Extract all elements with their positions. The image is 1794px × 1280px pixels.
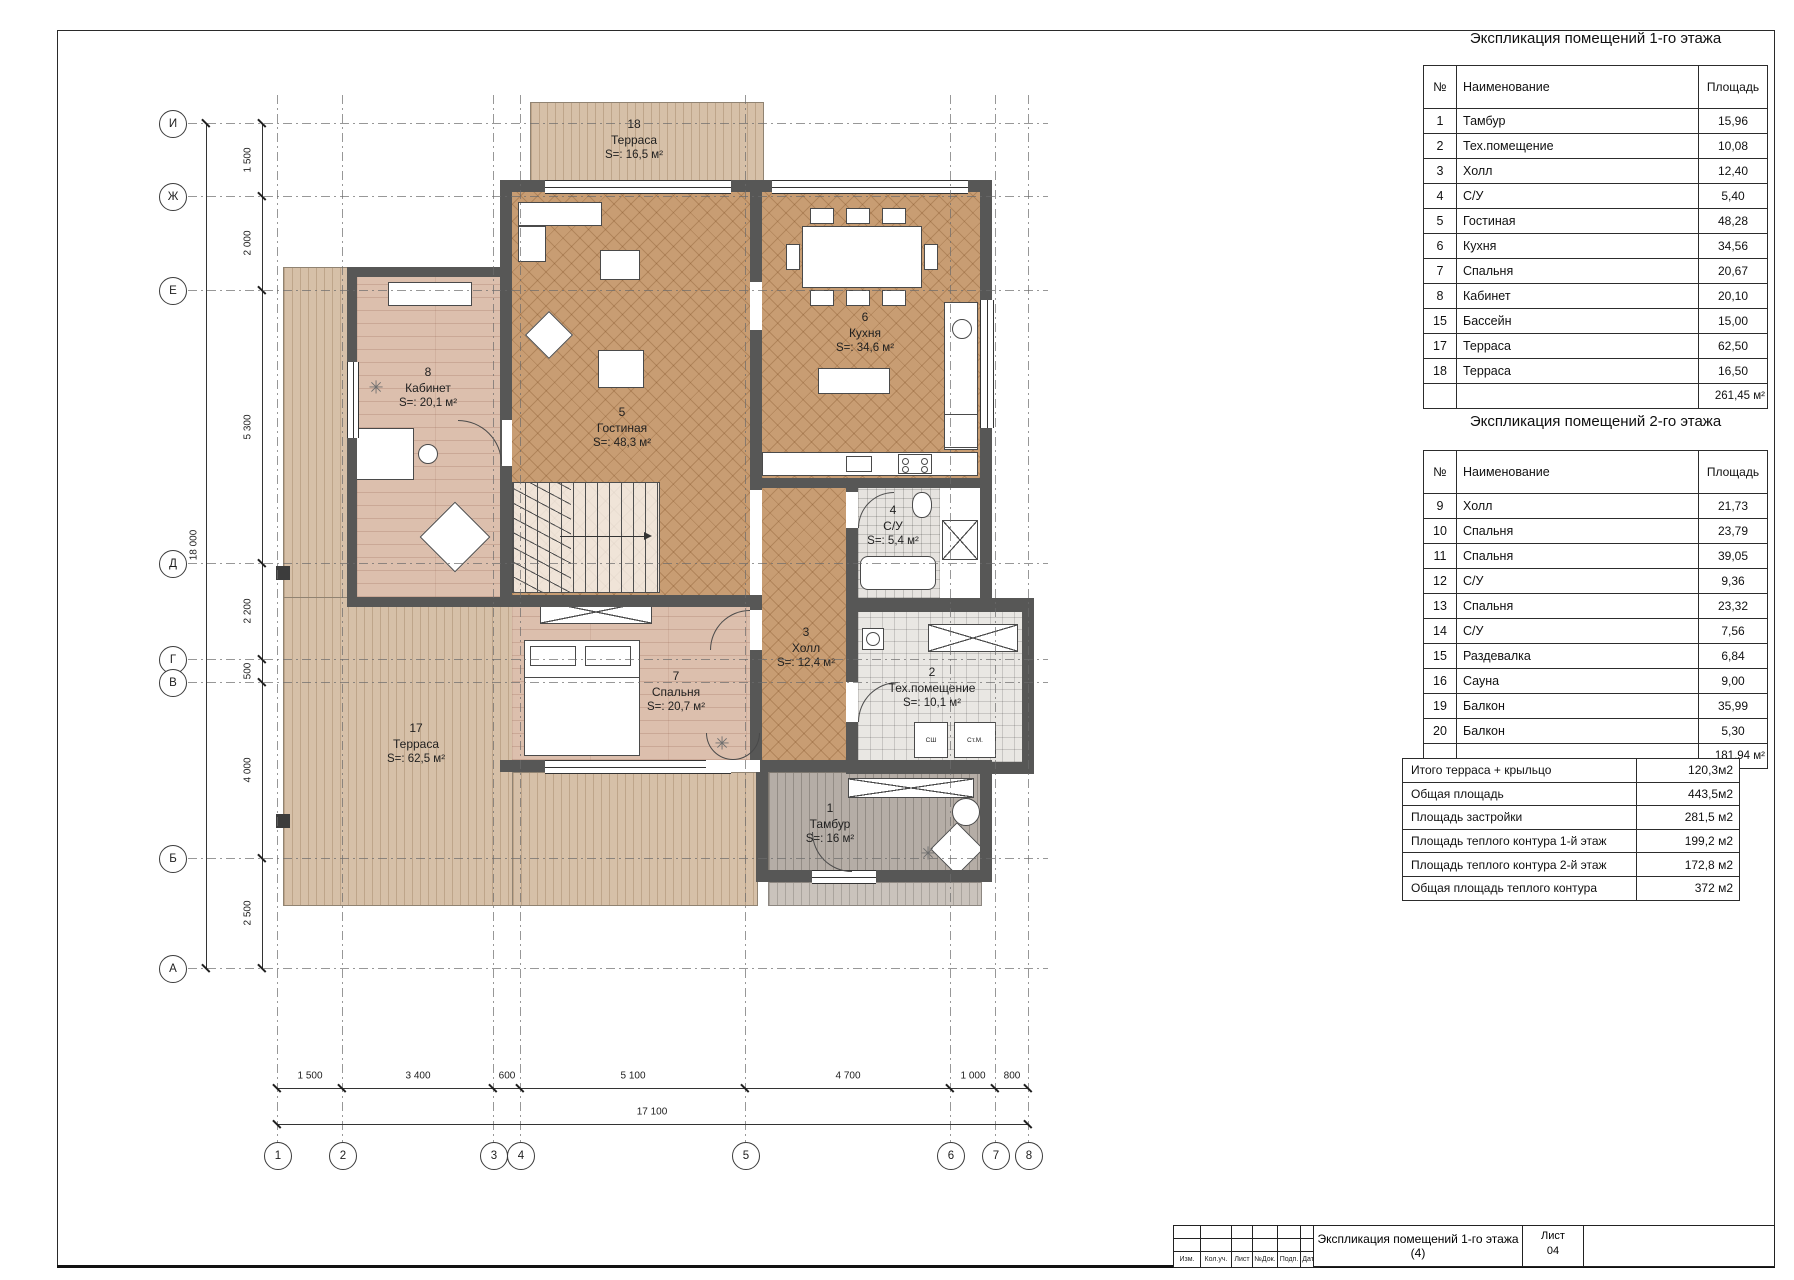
coffee-table [600,250,640,280]
table-cell: С/У [1457,184,1699,209]
axis-letter: В [159,669,187,697]
floor1-total: 261,45 м² [1699,384,1768,409]
grid-line [342,95,343,1143]
room-label-hall: 3 Холл S=: 12,4 м² [777,624,835,672]
col-header-area: Площадь [1699,66,1768,109]
table-row: 3Холл12,40 [1424,159,1768,184]
stamp-row [1174,1226,1320,1239]
axis-number: 3 [480,1142,508,1170]
chair [882,208,906,224]
dim-label: 5 300 [243,414,254,439]
table-cell: 18 [1424,359,1457,384]
room-area: S=: 20,1 м² [399,396,457,412]
grid-line [520,95,521,1143]
room-area: S=: 5,4 м² [867,534,919,550]
table-cell: 62,50 [1699,334,1768,359]
table-row: 9Холл21,73 [1424,494,1768,519]
table-row: 15Бассейн15,00 [1424,309,1768,334]
room-number: 2 [889,664,976,680]
table-row: 17Терраса62,50 [1424,334,1768,359]
wall [750,478,992,488]
window [545,760,731,774]
dim-label: 5 100 [620,1071,645,1082]
table-cell: Раздевалка [1457,644,1699,669]
table-cell: 16 [1424,669,1457,694]
stamp-cell [1201,1226,1232,1239]
table-row: 13Спальня23,32 [1424,594,1768,619]
table-row: 16Сауна9,00 [1424,669,1768,694]
axis-number: 2 [329,1142,357,1170]
axis-letter: Б [159,845,187,873]
table-cell: Итого терраса + крыльцо [1403,759,1637,783]
axis-number: 1 [264,1142,292,1170]
room-number: 3 [777,624,835,640]
blanket-line [525,677,639,678]
window [772,180,968,194]
office-sofa [388,282,472,306]
table-cell: 12 [1424,569,1457,594]
table-row: 6Кухня34,56 [1424,234,1768,259]
axis-number: 4 [507,1142,535,1170]
dining-table [802,226,922,288]
room-number: 1 [806,800,855,816]
entry-wardrobe [848,778,974,798]
table-cell: 5,40 [1699,184,1768,209]
axis-number-label: 4 [518,1150,524,1162]
dim-label: 4 700 [835,1071,860,1082]
room-label-kitchen: 6 Кухня S=: 34,6 м² [836,309,894,357]
room-label-tech: 2 Тех.помещение S=: 10,1 м² [889,664,976,712]
table-cell: 7,56 [1699,619,1768,644]
entry-door [812,870,876,884]
room-area: S=: 16,5 м² [605,148,663,164]
stairs-arrow-head [644,532,652,540]
table-cell: Терраса [1457,359,1699,384]
floor1-table-title: Экспликация помещений 1-го этажа [1423,30,1768,47]
room-name: Кухня [836,325,894,341]
wall [756,772,768,882]
col-header-num: № [1424,451,1457,494]
table-cell: 11 [1424,544,1457,569]
table-cell: 35,99 [1699,694,1768,719]
table-row: 19Балкон35,99 [1424,694,1768,719]
stamp-label: Подп. [1278,1252,1301,1268]
dimension-line-total [206,123,207,968]
axis-letter-label: Ж [168,191,179,203]
table-cell: Общая площадь [1403,782,1637,806]
room-name: Терраса [387,736,445,752]
dim-label-total: 17 100 [637,1107,668,1118]
sink-bowl [952,319,972,339]
stamp-row [1174,1239,1320,1252]
grid-line [188,563,1048,564]
table-cell: 15 [1424,309,1457,334]
axis-letter: И [159,110,187,138]
dim-label: 500 [243,663,254,680]
room-number: 8 [399,364,457,380]
washer: СШ [914,722,948,758]
dimension-line [262,123,263,968]
wall [980,762,992,882]
sheet-number: 04 [1523,1245,1583,1257]
grid-line [188,858,1048,859]
table-cell: Кабинет [1457,284,1699,309]
table-row: Площадь теплого контура 1-й этаж199,2 м2 [1403,829,1740,853]
table-row: 11Спальня39,05 [1424,544,1768,569]
burner [921,458,928,465]
table-cell: 2 [1424,134,1457,159]
chair [810,290,834,306]
axis-number: 6 [937,1142,965,1170]
table-cell: Площадь теплого контура 2-й этаж [1403,853,1637,877]
room-name: С/У [867,518,919,534]
wall [347,597,512,607]
room-label-bedroom: 7 Спальня S=: 20,7 м² [647,668,705,716]
table-cell [1457,384,1699,409]
door-opening [502,420,512,466]
table-cell: 4 [1424,184,1457,209]
room-label-living: 5 Гостиная S=: 48,3 м² [593,404,651,452]
room-name: Спальня [647,684,705,700]
stairs-winder [513,483,571,592]
table-cell: 48,28 [1699,209,1768,234]
window [545,180,731,194]
table-cell: Кухня [1457,234,1699,259]
axis-letter: Ж [159,183,187,211]
axis-letter-label: И [169,118,177,130]
dim-label: 1 500 [243,147,254,172]
room-name: Тамбур [806,816,855,832]
axis-letter-label: В [169,677,177,689]
dim-label: 2 000 [243,230,254,255]
bathtub [860,556,936,590]
door-opening [846,492,858,528]
grid-line [493,95,494,1143]
stamp-cell [1278,1239,1301,1252]
drawing-sheet: ✳ ✳ СШ Ст.М. ✳ [0,0,1794,1280]
table-cell: 9,36 [1699,569,1768,594]
grid-line [950,95,951,1143]
boiler-dial [866,632,880,646]
table-cell: 3 [1424,159,1457,184]
table-cell: 1 [1424,109,1457,134]
desk [356,428,414,480]
col-header-num: № [1424,66,1457,109]
chair [810,208,834,224]
stamp-label: №Док. [1253,1252,1278,1268]
table-cell: Холл [1457,159,1699,184]
table-cell: Спальня [1457,519,1699,544]
table-cell: Холл [1457,494,1699,519]
table-header-row: № Наименование Площадь [1424,451,1768,494]
floor-terrace-17-south [512,772,758,906]
table-cell: 15,96 [1699,109,1768,134]
stove [898,454,932,474]
sink [846,456,872,472]
deck-post [276,814,290,828]
dim-label: 3 400 [405,1071,430,1082]
table-cell: 5,30 [1699,719,1768,744]
kitchen-island [818,368,890,394]
door-opening [846,682,858,722]
floor1-table: № Наименование Площадь 1Тамбур15,962Тех.… [1423,65,1768,409]
chair [924,244,938,270]
table-cell: Тамбур [1457,109,1699,134]
table-cell: 6,84 [1699,644,1768,669]
axis-letter-label: Г [170,654,176,666]
table-cell: 10 [1424,519,1457,544]
grid-line [188,196,1048,197]
grid-line [188,123,1048,124]
axis-number-label: 6 [948,1150,954,1162]
table-row: Площадь застройки281,5 м2 [1403,806,1740,830]
axis-letter: А [159,955,187,983]
floor2-table-title: Экспликация помещений 2-го этажа [1423,413,1768,430]
axis-letter: Д [159,550,187,578]
table-row: 2Тех.помещение10,08 [1424,134,1768,159]
pillow [530,646,576,666]
axis-number-label: 1 [275,1150,281,1162]
dim-label: 600 [499,1071,516,1082]
table-cell: 15,00 [1699,309,1768,334]
table-cell: Гостиная [1457,209,1699,234]
table-total-row: 261,45 м² [1424,384,1768,409]
table-row: 10Спальня23,79 [1424,519,1768,544]
table-cell: 9 [1424,494,1457,519]
room-label-bathroom: 4 С/У S=: 5,4 м² [867,502,919,550]
plant-icon: ✳ [920,844,935,865]
dim-label-total: 18 000 [189,530,200,561]
axis-number-label: 5 [743,1150,749,1162]
stamp-table: Изм. Кол.уч. Лист №Док. Подп. Дата [1173,1225,1320,1268]
room-number: 5 [593,404,651,420]
burner [902,458,909,465]
axis-number-label: 7 [993,1150,999,1162]
plant-icon: ✳ [368,378,383,399]
grid-line [277,95,278,1143]
axis-letter-label: Е [169,285,177,297]
table-cell: Площадь застройки [1403,806,1637,830]
tech-cabinet [928,624,1018,652]
table-cell: 20,67 [1699,259,1768,284]
table-cell: Терраса [1457,334,1699,359]
chair [846,208,870,224]
dim-label: 2 500 [243,900,254,925]
table-cell: 14 [1424,619,1457,644]
stamp-label: Изм. [1174,1252,1201,1268]
dim-label: 4 000 [243,757,254,782]
axis-number-label: 2 [340,1150,346,1162]
table-cell: Спальня [1457,259,1699,284]
table-cell: 15 [1424,644,1457,669]
room-name: Кабинет [399,380,457,396]
room-number: 18 [605,116,663,132]
grid-line [188,659,1048,660]
col-header-name: Наименование [1457,66,1699,109]
wall [500,180,512,607]
table-cell: Бассейн [1457,309,1699,334]
table-cell: 6 [1424,234,1457,259]
table-cell: Балкон [1457,719,1699,744]
room-name: Холл [777,640,835,656]
table-row: 7Спальня20,67 [1424,259,1768,284]
titleblock-doc-title: Экспликация помещений 1-го этажа (4) [1313,1225,1523,1267]
floor2-table: № Наименование Площадь 9Холл21,7310Спаль… [1423,450,1768,769]
axis-number: 5 [732,1142,760,1170]
room-number: 17 [387,720,445,736]
axis-letter-label: А [169,963,177,975]
table-cell: 12,40 [1699,159,1768,184]
table-row: 5Гостиная48,28 [1424,209,1768,234]
stamp-cell [1232,1226,1253,1239]
grid-line [188,968,1048,969]
axis-letter: Е [159,277,187,305]
table-cell: 10,08 [1699,134,1768,159]
desk-chair [418,444,438,464]
col-header-name: Наименование [1457,451,1699,494]
room-area: S=: 10,1 м² [889,696,976,712]
table-cell: 443,5м2 [1637,782,1740,806]
table-cell: Общая площадь теплого контура [1403,876,1637,900]
table-cell: 199,2 м2 [1637,829,1740,853]
table-cell [1424,384,1457,409]
bed [524,640,640,756]
sheet-label: Лист [1523,1230,1583,1242]
table-cell: 17 [1424,334,1457,359]
wall [846,598,1034,612]
dim-label: 1 500 [297,1071,322,1082]
table-cell: 281,5 м2 [1637,806,1740,830]
room-number: 4 [867,502,919,518]
boiler [862,628,884,650]
stamp-cell [1253,1239,1278,1252]
table-cell: С/У [1457,569,1699,594]
stamp-cell [1201,1239,1232,1252]
table-header-row: № Наименование Площадь [1424,66,1768,109]
room-name: Терраса [605,132,663,148]
side-table [598,350,644,388]
room-area: S=: 48,3 м² [593,436,651,452]
stairs-arrow-line [560,536,648,537]
burner [902,466,909,473]
chair [846,290,870,306]
sofa [518,202,602,226]
table-cell: 21,73 [1699,494,1768,519]
table-cell: 20,10 [1699,284,1768,309]
shaft [942,520,978,560]
axis-letter-label: Д [169,558,177,570]
stamp-row: Изм. Кол.уч. Лист №Док. Подп. Дата [1174,1252,1320,1268]
door-opening [706,760,760,772]
wall [500,595,762,607]
table-cell: 120,3м2 [1637,759,1740,783]
sofa-chaise [518,226,546,262]
table-row: 8Кабинет20,10 [1424,284,1768,309]
grid-line [745,95,746,1143]
table-cell: 34,56 [1699,234,1768,259]
room-area: S=: 16 м² [806,832,855,848]
stamp-cell [1278,1226,1301,1239]
pillow [585,646,631,666]
stamp-cell [1232,1239,1253,1252]
dim-label: 800 [1004,1071,1021,1082]
stamp-cell [1174,1226,1201,1239]
table-cell: Спальня [1457,594,1699,619]
table-cell: 39,05 [1699,544,1768,569]
table-row: 4С/У5,40 [1424,184,1768,209]
stamp-label: Кол.уч. [1201,1252,1232,1268]
wall [347,267,512,277]
stamp-cell [1174,1239,1201,1252]
axis-number: 8 [1015,1142,1043,1170]
table-row: 1Тамбур15,96 [1424,109,1768,134]
dimension-line-total [277,1124,1028,1125]
table-cell: Балкон [1457,694,1699,719]
room-label-terrace-17: 17 Терраса S=: 62,5 м² [387,720,445,768]
summary-table: Итого терраса + крыльцо120,3м2Общая площ… [1402,758,1740,901]
table-cell: 9,00 [1699,669,1768,694]
table-cell: 7 [1424,259,1457,284]
table-row: Итого терраса + крыльцо120,3м2 [1403,759,1740,783]
stamp-cell [1253,1226,1278,1239]
dimension-line [277,1088,1028,1089]
grid-line [188,682,1048,683]
table-cell: 23,32 [1699,594,1768,619]
washer-label: СШ [926,737,937,744]
table-row: 20Балкон5,30 [1424,719,1768,744]
wall [750,192,762,282]
table-row: Общая площадь теплого контура372 м2 [1403,876,1740,900]
floor-terrace-left-strip [283,267,349,599]
table-cell: 8 [1424,284,1457,309]
room-area: S=: 62,5 м² [387,752,445,768]
axis-letter-label: Б [169,853,177,865]
room-area: S=: 20,7 м² [647,700,705,716]
titleblock-empty-cell [1583,1225,1775,1267]
table-cell: 13 [1424,594,1457,619]
window [980,300,994,428]
room-label-office: 8 Кабинет S=: 20,1 м² [399,364,457,412]
table-cell: 20 [1424,719,1457,744]
table-cell: 172,8 м2 [1637,853,1740,877]
table-row: 15Раздевалка6,84 [1424,644,1768,669]
axis-number-label: 3 [491,1150,497,1162]
grid-line [1028,95,1029,1143]
table-cell: 5 [1424,209,1457,234]
table-row: 14С/У7,56 [1424,619,1768,644]
stamp-label: Лист [1232,1252,1253,1268]
table-row: 12С/У9,36 [1424,569,1768,594]
table-row: 18Терраса16,50 [1424,359,1768,384]
grid-line [995,95,996,1143]
titleblock-sheet: Лист 04 [1522,1225,1584,1267]
deck-post [276,566,290,580]
room-area: S=: 34,6 м² [836,341,894,357]
door-opening [750,610,762,650]
doc-title-text: Экспликация помещений 1-го этажа (4) [1314,1232,1522,1260]
table-cell: Сауна [1457,669,1699,694]
table-cell: Спальня [1457,544,1699,569]
table-cell: 19 [1424,694,1457,719]
grid-line [188,290,1048,291]
table-cell: 372 м2 [1637,876,1740,900]
table-row: Общая площадь443,5м2 [1403,782,1740,806]
wall [750,330,762,490]
room-name: Гостиная [593,420,651,436]
dryer-label: Ст.М. [967,737,983,744]
table-cell: 23,79 [1699,519,1768,544]
dryer: Ст.М. [954,722,996,758]
